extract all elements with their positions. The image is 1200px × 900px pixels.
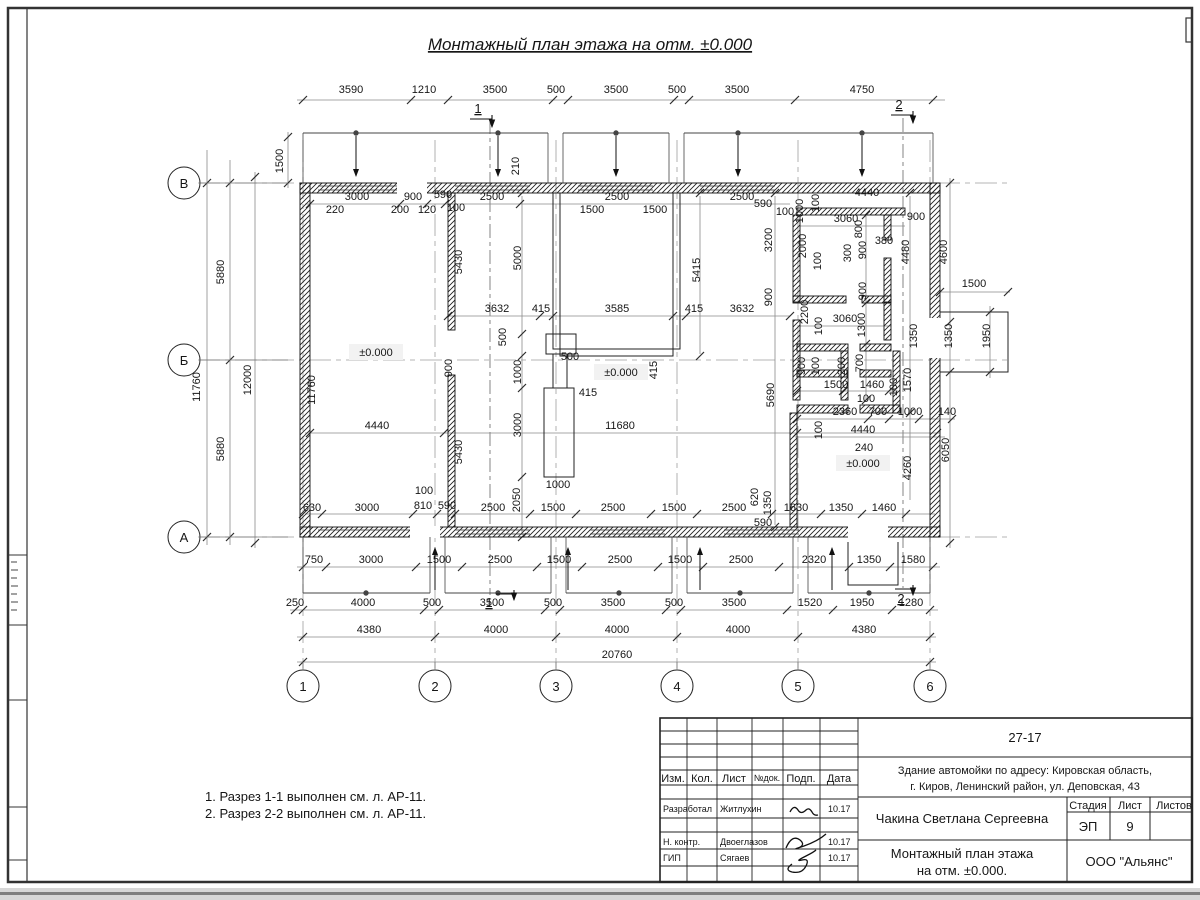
- dim-label: 2500: [481, 502, 505, 514]
- dim-label: 1580: [901, 554, 925, 566]
- dim-label: 2200: [799, 300, 811, 324]
- dim-label: 700: [869, 406, 887, 418]
- dim-label: 3500: [480, 597, 504, 609]
- dim-label: 3060: [833, 313, 857, 325]
- dim-label: 4750: [850, 84, 874, 96]
- dim-label: 120: [418, 204, 436, 216]
- dim-label: 140: [938, 406, 956, 418]
- axis-row-label: В: [180, 176, 189, 191]
- dim-label: 900: [763, 288, 775, 306]
- row-name: Житлухин: [720, 804, 762, 814]
- dim-label: 2320: [802, 554, 826, 566]
- row-role: Н. контр.: [663, 837, 700, 847]
- dim-label: 415: [648, 361, 660, 379]
- dim-label: 1350: [943, 324, 955, 348]
- axis-col-label: 1: [299, 679, 306, 694]
- dim-label: 1500: [824, 379, 848, 391]
- sheet-title-line2: на отм. ±0.000.: [917, 863, 1007, 878]
- dim-label: 590: [754, 198, 772, 210]
- dim-label: 4480: [900, 240, 912, 264]
- dim-label: 3200: [763, 228, 775, 252]
- dim-label: 12000: [242, 365, 254, 396]
- dim-label: 4440: [851, 424, 875, 436]
- dim-label: 1350: [857, 554, 881, 566]
- dim-label: 5880: [215, 437, 227, 461]
- dim-label: 500: [497, 328, 509, 346]
- dim-label: 900: [857, 282, 869, 300]
- axis-col-label: 4: [673, 679, 680, 694]
- col-izm: Изм.: [661, 773, 685, 785]
- signature-zhitlukhin: [790, 807, 818, 815]
- row-date: 10.17: [828, 853, 851, 863]
- dim-label: 3000: [345, 191, 369, 203]
- dim-label: 2500: [730, 191, 754, 203]
- dim-label: 1500: [541, 502, 565, 514]
- dim-label: 500: [423, 597, 441, 609]
- dim-label: 1460: [872, 502, 896, 514]
- dim-label: 2500: [605, 191, 629, 203]
- drawing-title: Монтажный план этажа на отм. ±0.000: [428, 35, 753, 54]
- dim-label: 1500: [962, 278, 986, 290]
- dim-label: 100: [447, 202, 465, 214]
- dim-label: 5415: [691, 258, 703, 282]
- dim-label: 100: [810, 194, 822, 212]
- dim-label: 900: [443, 359, 455, 377]
- row-name: Двоеглазов: [720, 837, 768, 847]
- central-pit: [544, 193, 680, 477]
- dim-label: 380: [875, 235, 893, 247]
- dim-label: 1350: [762, 491, 774, 515]
- dim-label: 100: [776, 206, 794, 218]
- dim-label: 1520: [798, 597, 822, 609]
- dim-label: 500: [561, 351, 579, 363]
- dim-label: 2500: [601, 502, 625, 514]
- dim-label: 4600: [938, 240, 950, 264]
- dim-label: 1300: [856, 313, 868, 337]
- dim-label: 1500: [274, 149, 286, 173]
- scan-edge-band: [0, 888, 1200, 900]
- dim-label: 1000: [512, 360, 524, 384]
- dim-label: 4000: [726, 624, 750, 636]
- dim-label: 1500: [668, 554, 692, 566]
- dim-label: 100: [813, 317, 825, 335]
- dim-label: 200: [836, 357, 848, 375]
- dim-label: 210: [510, 157, 522, 175]
- dim-label: 3632: [485, 303, 509, 315]
- dim-label: 6050: [940, 438, 952, 462]
- col-podp: Подп.: [786, 773, 815, 785]
- dim-label: 2500: [722, 502, 746, 514]
- doc-number: 27-17: [1008, 730, 1041, 745]
- dim-label: 1500: [427, 554, 451, 566]
- dim-label: 2500: [488, 554, 512, 566]
- stage-value: ЭП: [1079, 819, 1098, 834]
- col-list: Лист: [722, 773, 746, 785]
- title-block: 27-17 Здание автомойки по адресу: Кировс…: [660, 718, 1192, 882]
- dim-label: 100: [813, 421, 825, 439]
- dim-label: 1950: [850, 597, 874, 609]
- sheet-title-line1: Монтажный план этажа: [891, 846, 1034, 861]
- row-date: 10.17: [828, 837, 851, 847]
- axis-col-label: 3: [552, 679, 559, 694]
- dim-label: 500: [665, 597, 683, 609]
- dim-label: 1630: [784, 502, 808, 514]
- note-line: 1. Разрез 1-1 выполнен см. л. АР-11.: [205, 789, 426, 804]
- dim-label: 2500: [608, 554, 632, 566]
- note-line: 2. Разрез 2-2 выполнен см. л. АР-11.: [205, 806, 426, 821]
- dim-label: 1500: [547, 554, 571, 566]
- axis-col-label: 5: [794, 679, 801, 694]
- dim-label: 100: [415, 485, 433, 497]
- dim-label: 100: [812, 252, 824, 270]
- dim-label: 1950: [981, 324, 993, 348]
- dim-label: 1570: [902, 368, 914, 392]
- author-name: Чакина Светлана Сергеевна: [876, 811, 1049, 826]
- dim-label: 900: [907, 211, 925, 223]
- col-kol: Кол.: [691, 773, 713, 785]
- dim-label: 5000: [512, 246, 524, 270]
- col-ndok: №док.: [754, 773, 780, 783]
- dim-label: 590: [754, 517, 772, 529]
- signature-syagaev: [788, 850, 816, 872]
- axis-row-label: Б: [180, 353, 189, 368]
- dim-label: 1000: [794, 199, 806, 223]
- axis-row-label: А: [180, 530, 189, 545]
- section-mark-1-top: 1: [474, 101, 481, 116]
- dim-label: 4440: [855, 187, 879, 199]
- dim-label: 630: [303, 502, 321, 514]
- dim-label: 3000: [355, 502, 379, 514]
- object-address-line1: Здание автомойки по адресу: Кировская об…: [898, 765, 1152, 777]
- object-address-line2: г. Киров, Ленинский район, ул. Деповская…: [910, 781, 1140, 793]
- dim-label: 3060: [834, 213, 858, 225]
- dim-label: 3000: [359, 554, 383, 566]
- dim-label: 3500: [483, 84, 507, 96]
- dim-label: 4260: [902, 456, 914, 480]
- dim-label: 5690: [765, 383, 777, 407]
- dim-label: 4000: [484, 624, 508, 636]
- axis-col-label: 2: [431, 679, 438, 694]
- dim-label: 2500: [480, 191, 504, 203]
- dim-label: 3500: [601, 597, 625, 609]
- dim-label: 1000: [898, 406, 922, 418]
- dim-label: 300: [842, 244, 854, 262]
- col-data: Дата: [827, 773, 852, 785]
- dim-label: 250: [286, 597, 304, 609]
- level-mark: ±0.000: [846, 458, 880, 470]
- dim-label: 1210: [412, 84, 436, 96]
- dim-label: 500: [544, 597, 562, 609]
- level-mark: ±0.000: [359, 347, 393, 359]
- drawing-sheet: Монтажный план этажа на отм. ±0.000: [0, 0, 1200, 900]
- dim-label: 4380: [852, 624, 876, 636]
- dim-label: 220: [326, 204, 344, 216]
- dim-label: 3585: [605, 303, 629, 315]
- dim-label: 5430: [453, 440, 465, 464]
- dim-label: 4440: [365, 420, 389, 432]
- dim-label: 620: [749, 488, 761, 506]
- dim-label: 3500: [604, 84, 628, 96]
- axis-col-label: 6: [926, 679, 933, 694]
- dim-label: 415: [685, 303, 703, 315]
- dim-label: 3500: [725, 84, 749, 96]
- dim-label: 3590: [339, 84, 363, 96]
- dim-label: 2050: [511, 488, 523, 512]
- margin-strip-smudge: [11, 562, 18, 610]
- row-name: Сягаев: [720, 853, 749, 863]
- dim-label: 900: [796, 357, 808, 375]
- sheet-frame: [8, 8, 1192, 882]
- dim-label: 1500: [662, 502, 686, 514]
- axis-bubbles: [168, 167, 946, 702]
- dim-label: 3632: [730, 303, 754, 315]
- dim-label: 4000: [605, 624, 629, 636]
- dim-label: 700: [854, 354, 866, 372]
- dim-label: 2500: [729, 554, 753, 566]
- dim-label: 590: [434, 189, 452, 201]
- dim-label: 100: [810, 357, 822, 375]
- dim-label: 3500: [722, 597, 746, 609]
- dim-label: 1500: [643, 204, 667, 216]
- notes: 1. Разрез 1-1 выполнен см. л. АР-11. 2. …: [205, 789, 426, 821]
- dim-label: 900: [857, 241, 869, 259]
- dim-label: 415: [579, 387, 597, 399]
- dim-label: 20760: [602, 649, 633, 661]
- dim-label: 750: [305, 554, 323, 566]
- sheets-label: Листов: [1156, 800, 1192, 812]
- company-name: ООО "Альянс": [1086, 854, 1173, 869]
- dim-label: 11760: [191, 372, 203, 402]
- dim-label: 4380: [357, 624, 381, 636]
- dim-label: 3000: [512, 413, 524, 437]
- dim-label: 5430: [453, 250, 465, 274]
- dim-label: 200: [391, 204, 409, 216]
- dim-label: 2000: [797, 234, 809, 258]
- dim-label: 1350: [829, 502, 853, 514]
- dim-label: 1000: [546, 479, 570, 491]
- sheet-label: Лист: [1118, 800, 1142, 812]
- row-date: 10.17: [828, 804, 851, 814]
- row-role: Разработал: [663, 804, 712, 814]
- dim-label: 100: [857, 393, 875, 405]
- dim-label: 11680: [605, 420, 635, 432]
- dim-label: 5880: [215, 260, 227, 284]
- sheet-value: 9: [1126, 819, 1133, 834]
- dim-label: 240: [855, 442, 873, 454]
- dim-label: 100: [888, 378, 900, 396]
- dim-label: 4000: [351, 597, 375, 609]
- dim-label: 590: [438, 500, 456, 512]
- dim-label: 2360: [833, 406, 857, 418]
- stage-label: Стадия: [1069, 800, 1107, 812]
- dim-label: 1280: [899, 597, 923, 609]
- section-mark-2-top: 2: [895, 97, 902, 112]
- dim-label: 1350: [908, 324, 920, 348]
- row-role: ГИП: [663, 853, 681, 863]
- dim-label: 810: [414, 500, 432, 512]
- dim-label: 1460: [860, 379, 884, 391]
- dim-label: 415: [532, 303, 550, 315]
- dim-label: 500: [668, 84, 686, 96]
- dim-label: 500: [547, 84, 565, 96]
- dim-label: 11760: [306, 375, 318, 405]
- dim-label: 1500: [580, 204, 604, 216]
- dim-label: 900: [404, 191, 422, 203]
- level-mark: ±0.000: [604, 367, 638, 379]
